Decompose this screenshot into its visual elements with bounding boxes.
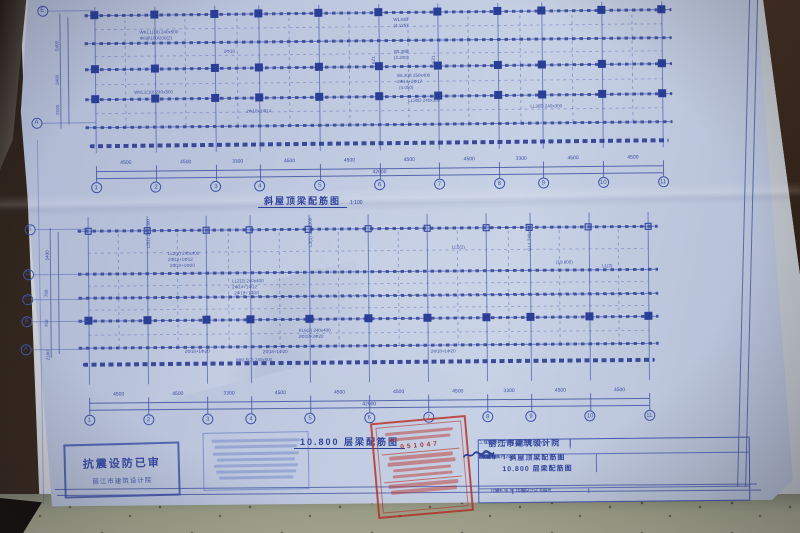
faint-blue-stamp	[203, 431, 310, 491]
dimension-tick	[251, 396, 252, 413]
grid-line	[206, 216, 208, 384]
column-square	[424, 314, 432, 322]
grid-line	[368, 214, 370, 382]
left-dimension-label: 5400	[46, 250, 51, 260]
secondary-beam-line	[228, 229, 230, 346]
left-dimension-label: 780	[45, 290, 50, 298]
axis-bubble: 6	[364, 412, 375, 423]
left-dimension-label: 2100	[46, 350, 51, 360]
row-axis-bubble: C	[22, 294, 33, 305]
column-square	[644, 312, 652, 320]
dimension-label: 4500	[555, 389, 566, 394]
dimension-tick	[649, 393, 650, 410]
column-square	[364, 225, 371, 232]
secondary-beam-line	[508, 227, 510, 344]
title-block: 丽江市建筑设计院 工程名称 宁蒗县宁利完小 工程代号 审 定审 核校 对设 计 …	[478, 437, 751, 504]
column-square	[585, 223, 592, 230]
axis-bubble: 5	[305, 413, 316, 424]
roof-plan-title: 斜屋顶梁配筋图1:100	[258, 191, 363, 209]
dimension-tick	[148, 397, 149, 414]
column-square	[483, 313, 491, 321]
dimension-label: 4500	[172, 392, 183, 397]
grid-line	[427, 214, 429, 382]
secondary-beam-line	[397, 228, 399, 345]
secondary-beam-line	[117, 230, 119, 347]
row-axis-bubble: E	[24, 224, 35, 235]
dimension-tick	[89, 398, 90, 415]
dimension-tick	[590, 393, 591, 410]
page-count: 第 5 张 共 10 张	[479, 489, 541, 495]
axis-bubble: 2	[143, 414, 154, 425]
axis-bubble: 10	[585, 410, 596, 421]
seismic-stamp-line2: 丽江市建筑设计院	[92, 474, 152, 486]
dimension-label: 4500	[275, 391, 286, 396]
stamp-text-line	[214, 445, 297, 449]
axis-leader-line	[32, 349, 89, 350]
dimension-tick	[531, 394, 532, 411]
axis-bubble: 11	[644, 410, 655, 421]
stamp-text-line	[219, 476, 294, 480]
dimension-tick	[487, 394, 488, 411]
left-dimension-chain	[50, 228, 52, 358]
beam-annotation: 2Φ18+1Φ20	[185, 350, 210, 355]
column-square	[246, 226, 253, 233]
beam-annotation: LL2(2)	[452, 245, 465, 250]
beam-annotation: WKL5(2) 240x500	[236, 358, 272, 363]
column-square	[482, 224, 489, 231]
beam-annotation: 2Φ18+1Φ20	[234, 291, 259, 296]
column-square	[423, 224, 430, 231]
column-square	[526, 313, 534, 321]
beam-annotation: L3(1) 240x300	[147, 219, 152, 248]
project-code-label: 工程代号	[479, 440, 497, 445]
secondary-beam-line	[559, 227, 561, 344]
dimension-tick	[310, 396, 311, 413]
secondary-beam-line	[618, 226, 620, 343]
plan-title-text: 斜屋顶梁配筋图	[258, 196, 347, 208]
axis-bubble: 8	[482, 411, 493, 422]
row-axis-bubble: D	[23, 269, 34, 280]
beam-annotation: GL1 240x300	[528, 224, 533, 251]
dimension-label: 4500	[452, 389, 463, 394]
stamp-text-line	[216, 469, 297, 473]
beam-annotation: 2Φ18+1Φ20	[170, 264, 195, 269]
dimension-tick	[428, 395, 429, 412]
plan-scale: 1:100	[350, 200, 363, 206]
grid-line	[88, 217, 90, 385]
stamp-text-line	[214, 463, 299, 467]
stamp-text-line	[211, 438, 299, 443]
axis-bubble: 9	[525, 411, 536, 422]
secondary-beam-line	[338, 229, 340, 346]
beam-annotation: (10.800)	[556, 260, 573, 265]
axis-bubble: 1	[84, 415, 95, 426]
grid-line	[648, 212, 650, 380]
sheet-info-value: 2009年08月20日	[479, 455, 516, 461]
beam-annotation: 2Φ18+1Φ20	[263, 350, 288, 355]
drawing-name-2: 10.800 层梁配筋图	[502, 465, 572, 473]
drawing-name-1: 斜屋顶梁配筋图	[509, 455, 565, 463]
left-dimension-chain	[58, 232, 60, 354]
column-square	[202, 226, 209, 233]
column-square	[644, 222, 651, 229]
photo-of-blueprint: 4500450033004500450045004500330045004500…	[0, 0, 800, 533]
red-stamp-inner-border: 051047	[375, 420, 468, 513]
grid-line	[588, 212, 590, 380]
dimension-tick	[207, 397, 208, 414]
dimension-label: 3300	[224, 391, 235, 396]
beam-annotation: 2Φ18+1Φ20	[431, 350, 456, 355]
dimension-label: 4500	[334, 390, 345, 395]
axis-leader-line	[33, 299, 88, 300]
dimension-label: 3300	[504, 389, 515, 394]
dimension-label: 4500	[393, 390, 404, 395]
beam-annotation: 2Φ18+2Φ20	[299, 335, 324, 340]
grid-line	[486, 213, 488, 381]
beam-annotation: L3(1) 240x300	[309, 218, 314, 247]
column-square	[246, 315, 254, 323]
beam-annotation: L1(2)	[602, 264, 613, 269]
column-square	[144, 316, 152, 324]
secondary-beam-line	[279, 229, 281, 346]
column-square	[203, 316, 211, 324]
seismic-stamp-line1: 抗震设防已审	[83, 454, 161, 472]
dimension-label: 4500	[614, 388, 625, 393]
secondary-beam-line	[176, 230, 178, 347]
column-square	[305, 315, 313, 323]
axis-bubble: 3	[202, 414, 213, 425]
left-dimension-label: 750	[45, 320, 50, 328]
row-axis-bubble: A	[20, 344, 31, 355]
column-square	[585, 312, 593, 320]
axis-bubble: 4	[245, 413, 256, 424]
stamp-text-line	[217, 457, 296, 461]
stamp-text-line	[213, 451, 299, 456]
review-red-stamp: 051047	[370, 415, 474, 519]
seismic-review-stamp: 抗震设防已审 丽江市建筑设计院	[63, 441, 180, 498]
total-dimension-label: 42600	[362, 402, 376, 407]
column-square	[364, 314, 372, 322]
row-axis-bubble: B	[21, 316, 32, 327]
dimension-label: 4500	[113, 392, 124, 397]
